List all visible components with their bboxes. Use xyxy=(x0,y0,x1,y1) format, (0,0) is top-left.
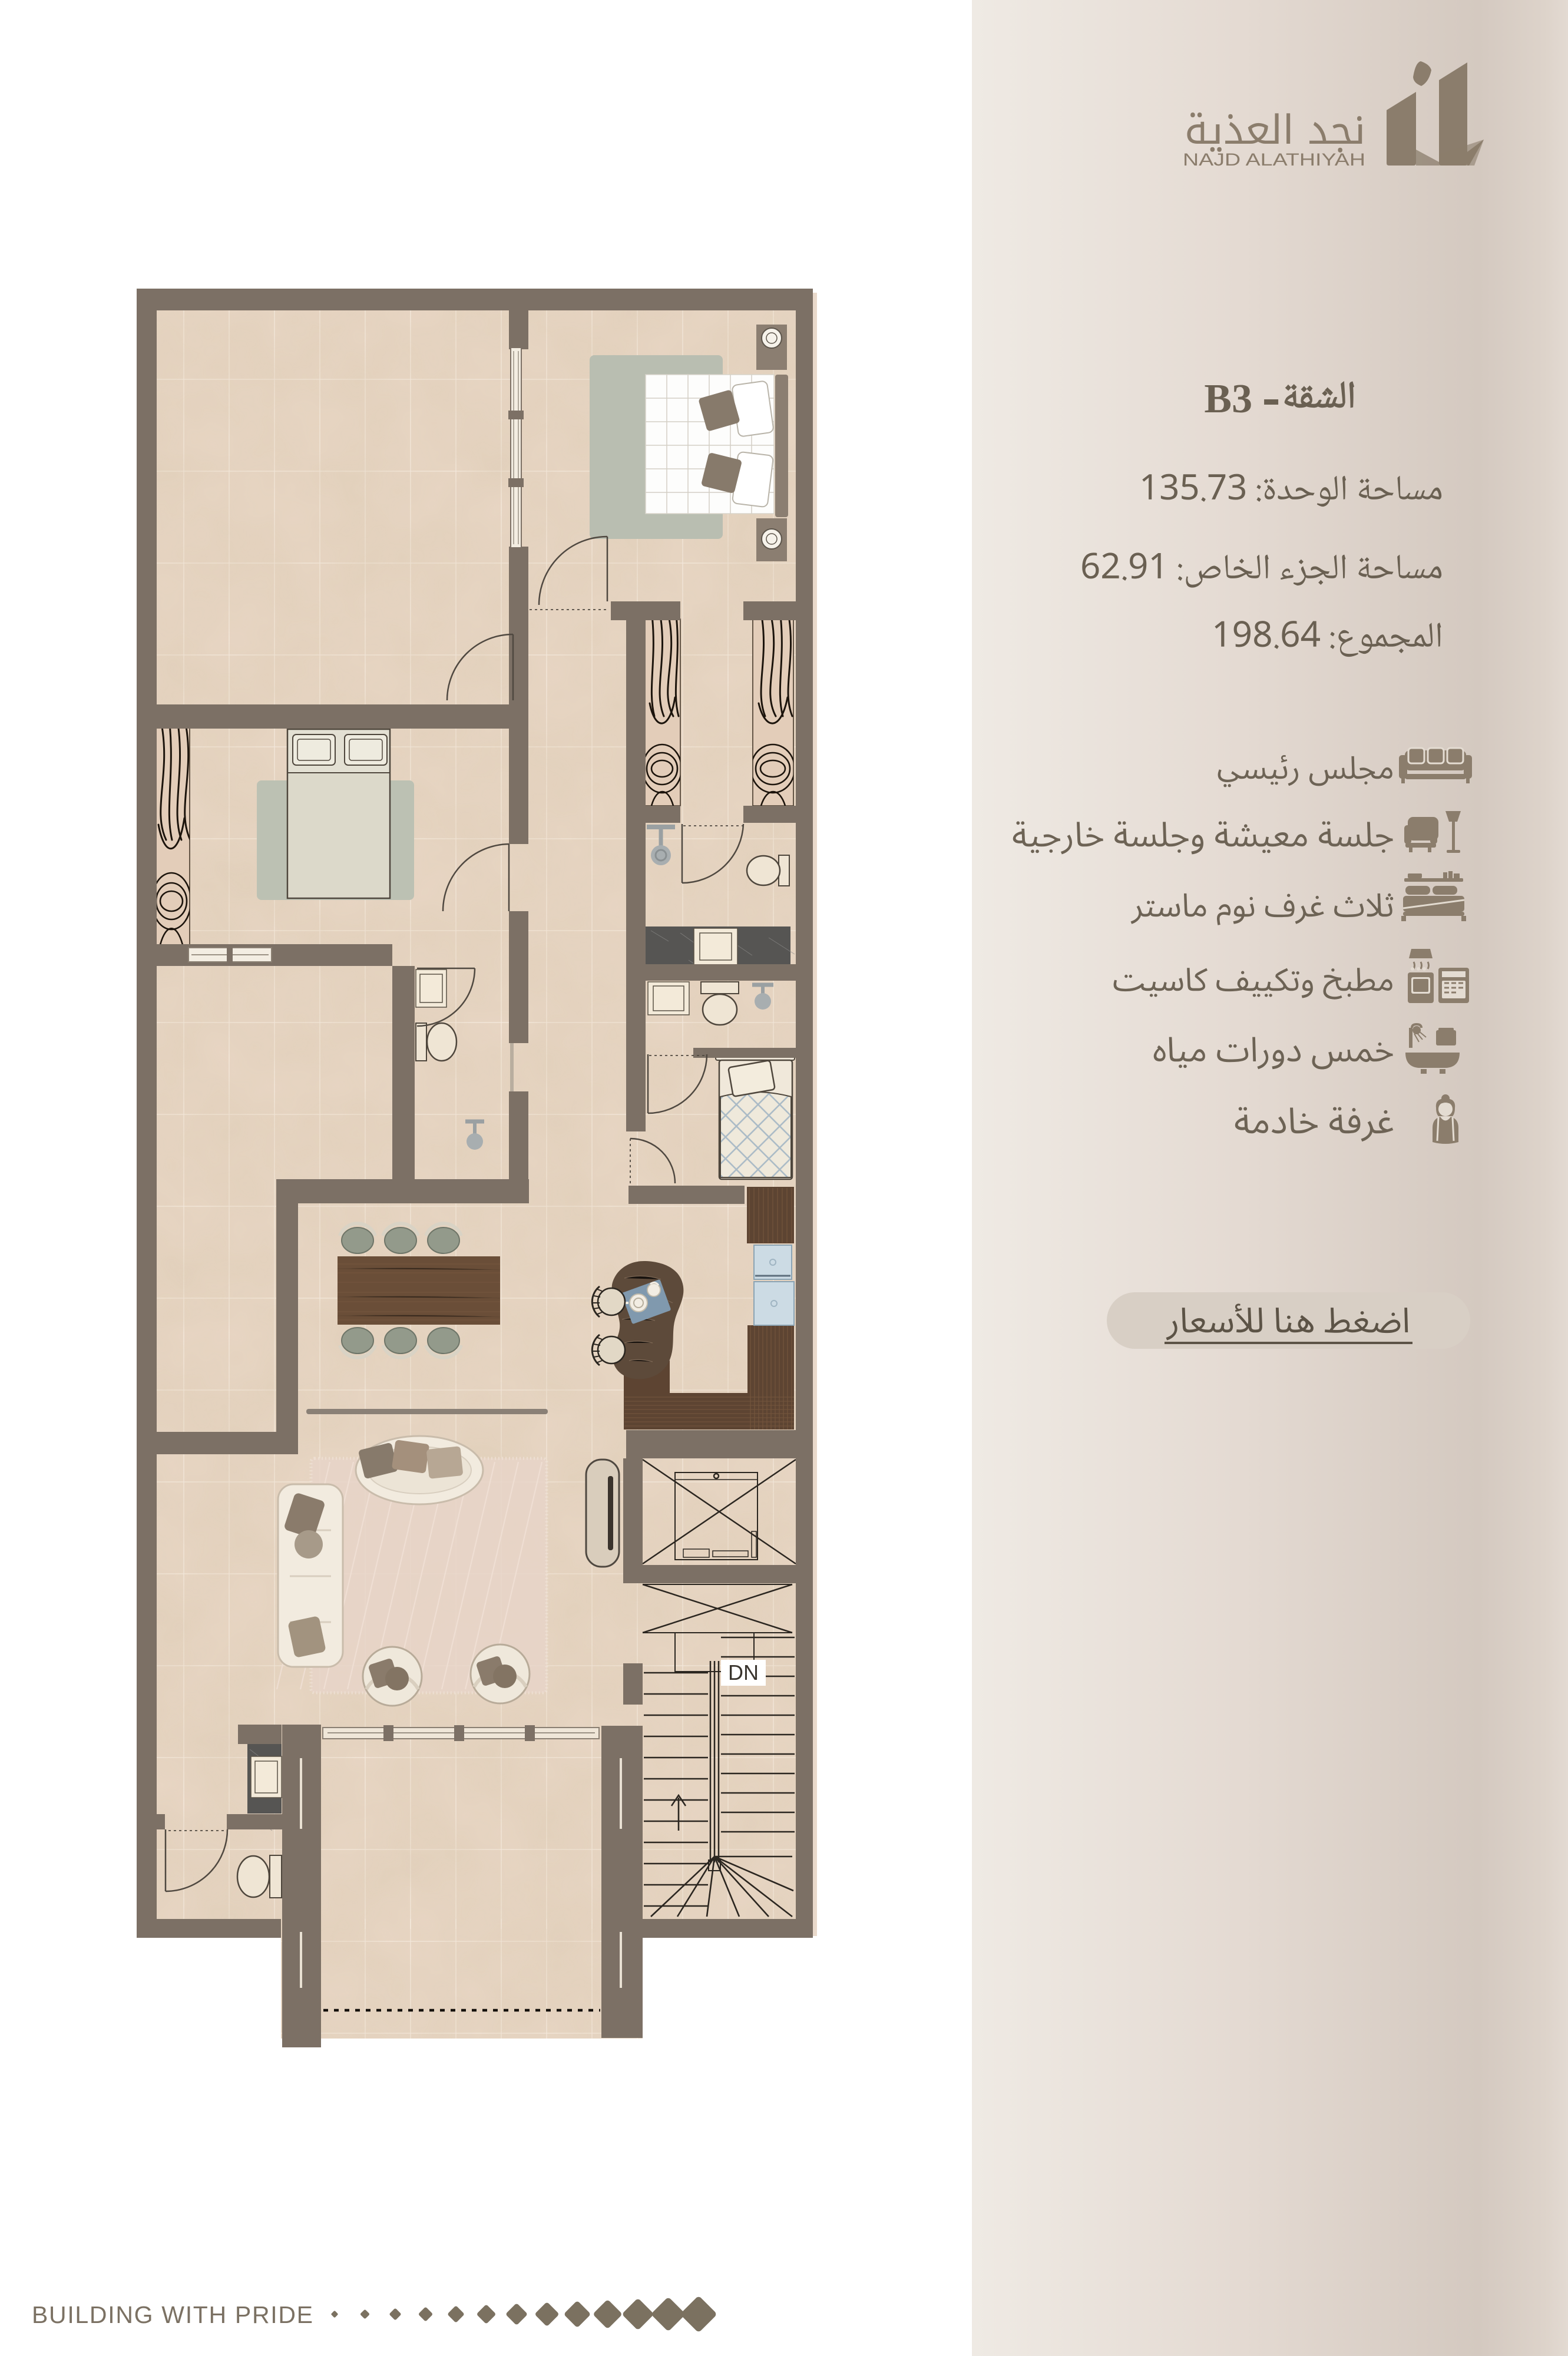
svg-text:DN: DN xyxy=(728,1660,759,1685)
svg-text:BUILDING WITH PRIDE: BUILDING WITH PRIDE xyxy=(32,2301,313,2328)
svg-text:NAJD ALATHIYAH: NAJD ALATHIYAH xyxy=(1183,150,1365,170)
svg-text:B3: B3 xyxy=(1204,376,1252,422)
